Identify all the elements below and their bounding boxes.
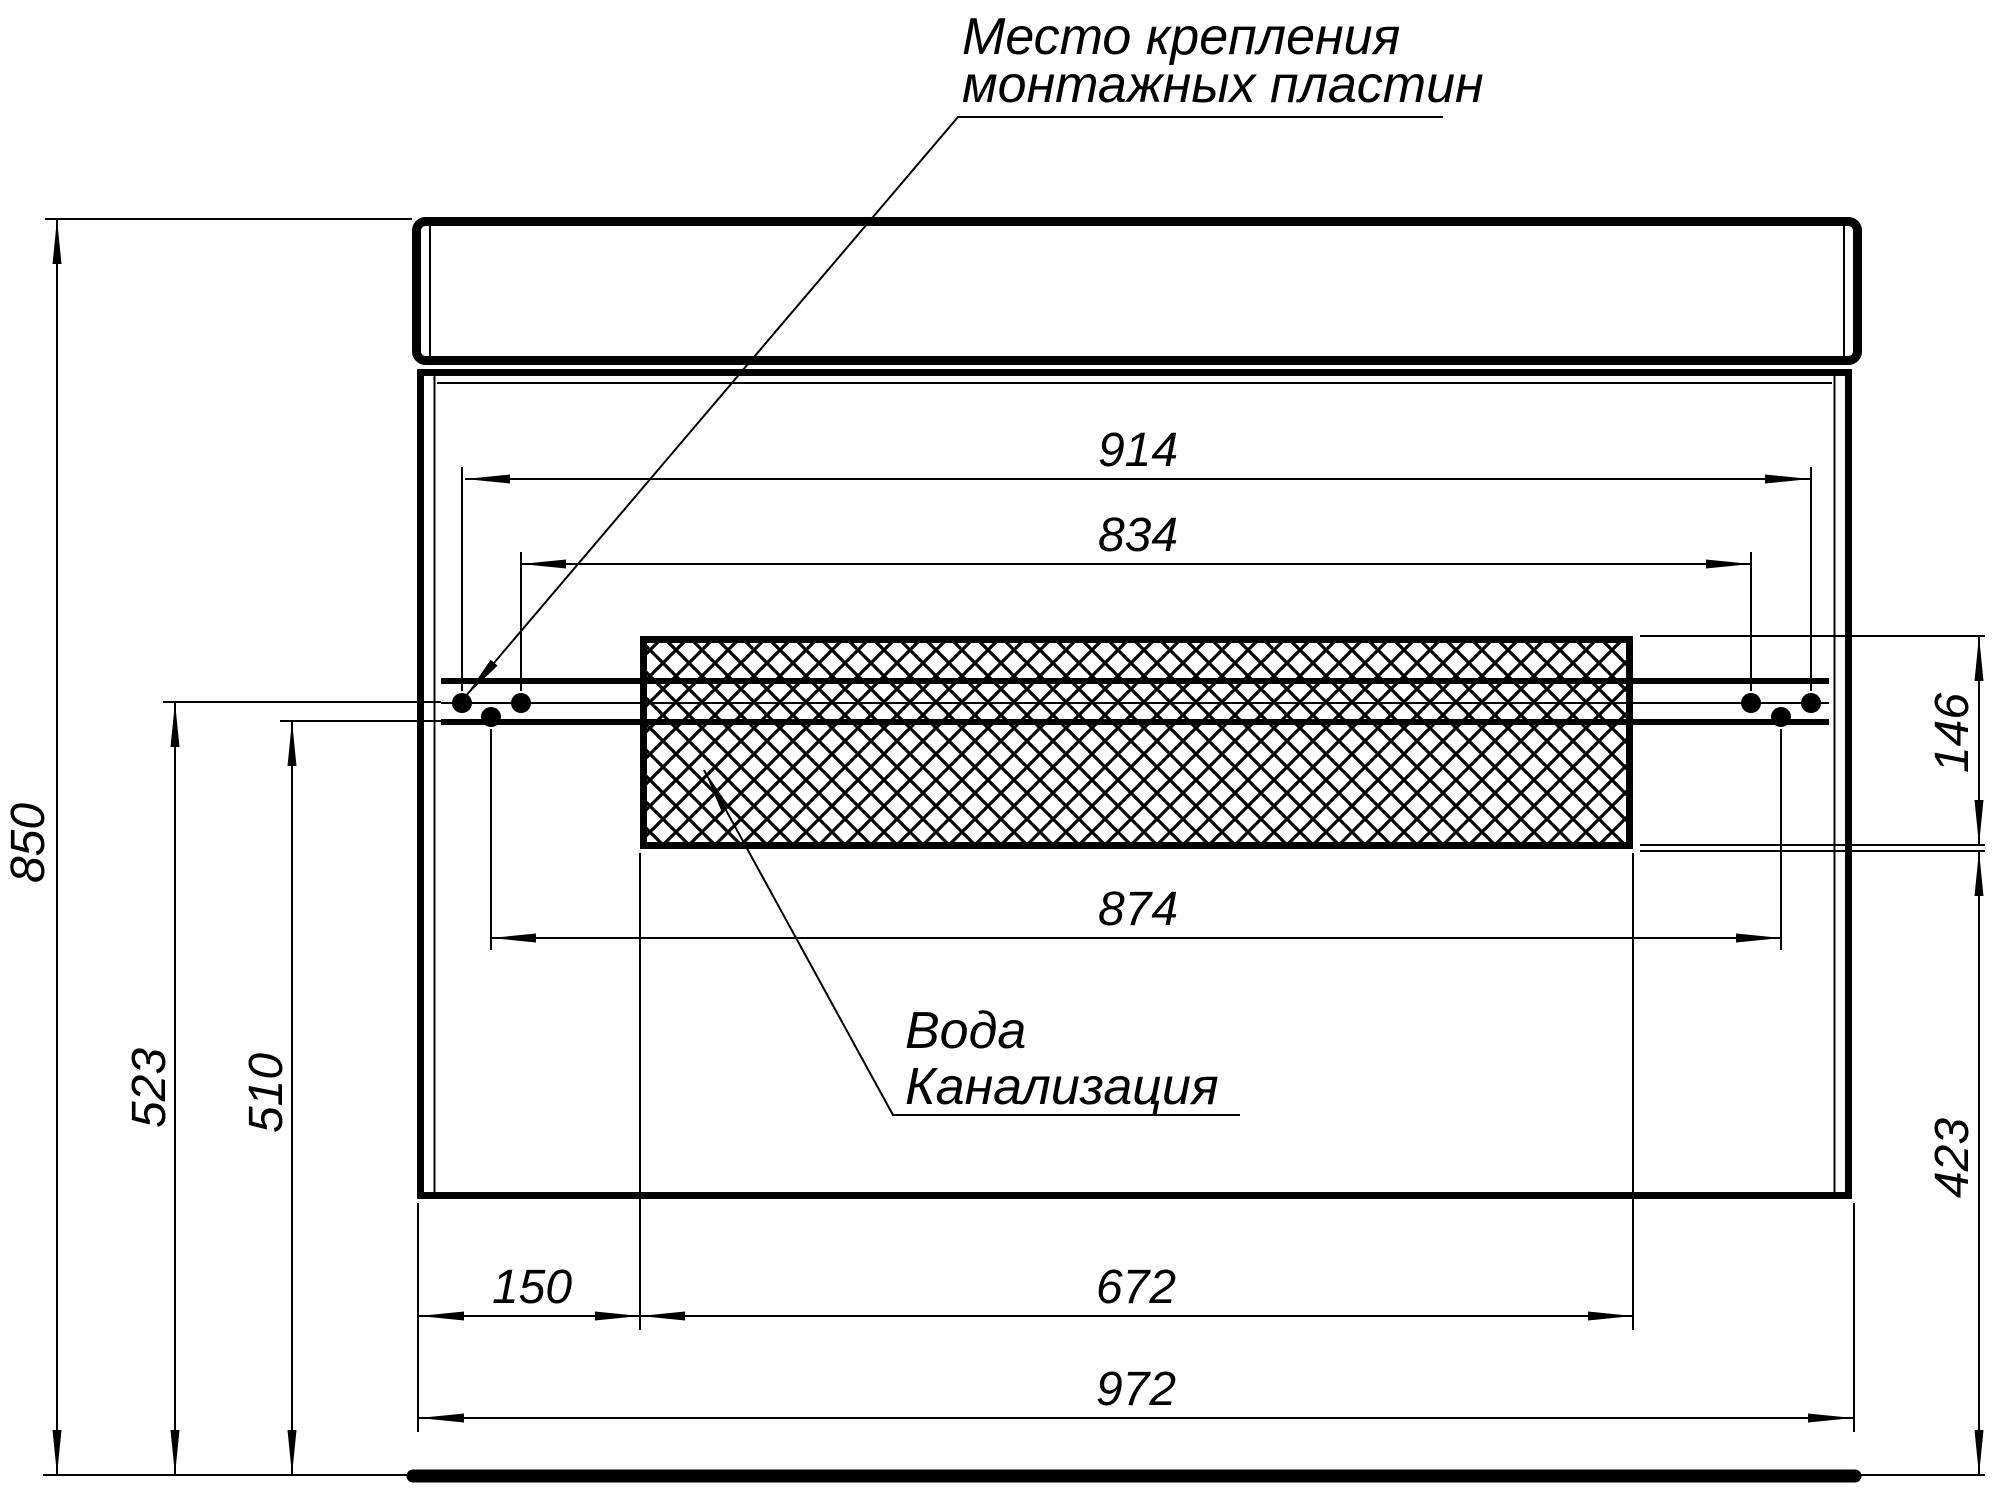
dim-label-150: 150 — [492, 1261, 572, 1314]
countertop-outline — [417, 222, 1858, 361]
hatch-area — [644, 640, 1630, 846]
dim-label-972: 972 — [1096, 1363, 1176, 1416]
dim-label-423: 423 — [1926, 1118, 1979, 1198]
mounting-note-line2: монтажных пластин — [962, 56, 1484, 114]
dim-label-834: 834 — [1098, 509, 1178, 562]
dim-label-146: 146 — [1926, 693, 1979, 773]
vanity-installation-drawing: Место крепления монтажных пластин Вода К… — [0, 0, 1992, 1490]
mounting-hatch-strip — [644, 640, 1630, 846]
floor-line — [43, 1475, 1985, 1476]
mount-dot-lower-left — [481, 707, 501, 727]
dim-label-510: 510 — [240, 1053, 293, 1133]
mount-dot-inner-left — [511, 693, 531, 713]
mount-dot-outer-right — [1801, 693, 1821, 713]
dim-label-914: 914 — [1098, 424, 1178, 477]
mount-dot-outer-left — [452, 693, 472, 713]
countertop — [417, 222, 1858, 361]
dim-label-523: 523 — [123, 1048, 176, 1128]
mounting-note-leader — [465, 117, 1443, 697]
dim-label-850: 850 — [2, 803, 55, 883]
mount-dot-lower-right — [1771, 707, 1791, 727]
dim-label-874: 874 — [1098, 883, 1178, 936]
dim-label-672: 672 — [1096, 1261, 1176, 1314]
utilities-note-line1: Вода — [905, 1002, 1026, 1060]
technical-drawing-canvas: Место крепления монтажных пластин Вода К… — [0, 0, 1992, 1490]
mount-dot-inner-right — [1741, 693, 1761, 713]
utilities-note-line2: Канализация — [905, 1058, 1219, 1116]
